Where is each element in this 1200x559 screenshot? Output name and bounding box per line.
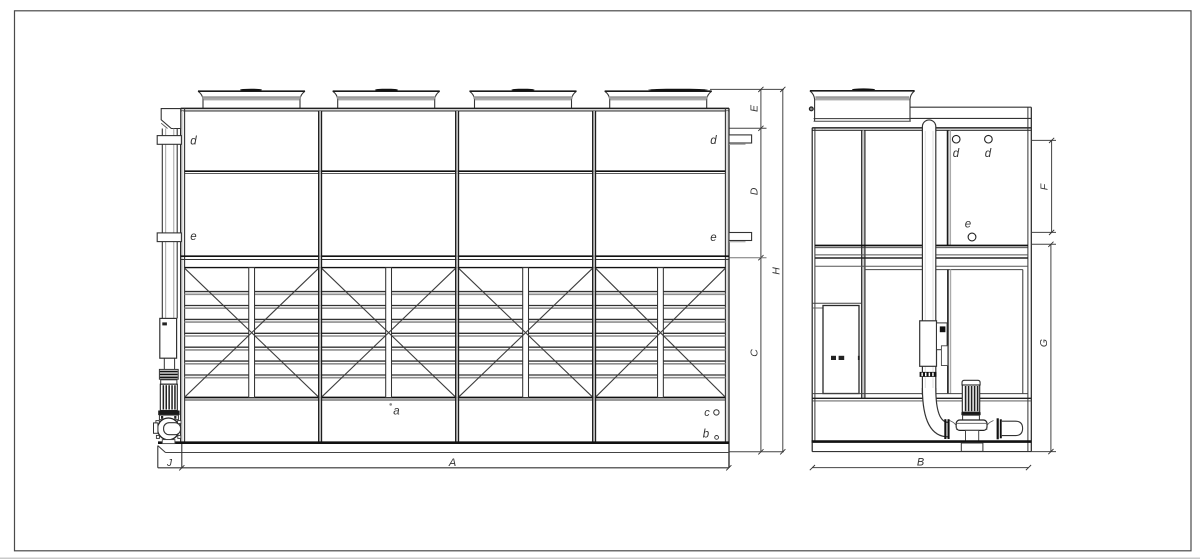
svg-text:E: E <box>749 104 761 112</box>
svg-text:A: A <box>448 457 456 469</box>
svg-text:J: J <box>166 458 173 469</box>
svg-text:B: B <box>917 456 924 468</box>
svg-text:b: b <box>703 428 710 440</box>
svg-text:d: d <box>710 135 717 147</box>
svg-text:c: c <box>704 407 710 419</box>
svg-text:d: d <box>953 148 960 160</box>
svg-text:F: F <box>1039 183 1051 190</box>
svg-text:d: d <box>190 136 197 148</box>
svg-text:D: D <box>749 187 761 195</box>
svg-text:C: C <box>749 349 761 357</box>
svg-text:d: d <box>985 148 992 160</box>
svg-text:e: e <box>710 232 716 244</box>
svg-text:a: a <box>393 406 399 418</box>
svg-text:e: e <box>190 231 196 243</box>
svg-text:e: e <box>965 219 971 231</box>
svg-text:H: H <box>770 267 782 275</box>
svg-text:G: G <box>1038 339 1050 347</box>
